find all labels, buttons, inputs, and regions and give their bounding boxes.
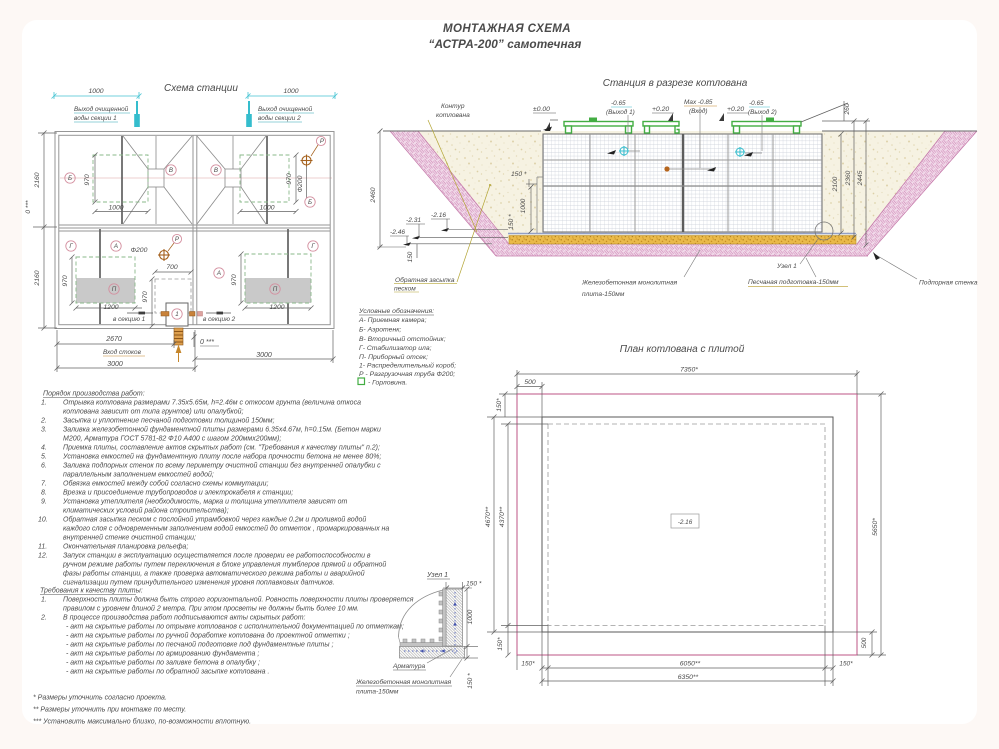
- svg-text:Железобетонная монолитная: Железобетонная монолитная: [355, 678, 452, 686]
- svg-text:в секцию 1: в секцию 1: [113, 316, 146, 323]
- svg-text:500: 500: [861, 637, 868, 648]
- svg-text:2.: 2.: [40, 418, 47, 425]
- svg-text:2460: 2460: [370, 187, 377, 203]
- svg-text:700: 700: [166, 264, 178, 271]
- svg-text:970: 970: [84, 174, 91, 186]
- svg-text:Железобетонная монолитная: Железобетонная монолитная: [581, 279, 678, 287]
- svg-text:плита-150мм: плита-150мм: [356, 689, 399, 696]
- svg-text:970: 970: [62, 275, 69, 287]
- svg-text:Ф200: Ф200: [297, 175, 304, 192]
- svg-text:10.: 10.: [38, 517, 48, 524]
- svg-text:1000: 1000: [467, 609, 474, 624]
- svg-text:- акт на скрытые работы по руч: - акт на скрытые работы по ручной дорабо…: [66, 632, 350, 640]
- svg-text:260: 260: [844, 103, 851, 115]
- svg-text:-2.16: -2.16: [678, 519, 693, 526]
- svg-text:Установка емкостей на фундамен: Установка емкостей на фундаментную плиту…: [62, 453, 381, 461]
- svg-text:5.: 5.: [41, 454, 47, 461]
- svg-text:В процессе производства работ: В процессе производства работ подписываю…: [63, 614, 306, 622]
- svg-text:Вход стоков: Вход стоков: [103, 348, 142, 356]
- svg-text:7350*: 7350*: [680, 367, 698, 374]
- svg-text:А: А: [216, 270, 221, 277]
- svg-text:2160: 2160: [34, 172, 41, 188]
- svg-text:Узел 1: Узел 1: [426, 572, 448, 579]
- svg-text:1000: 1000: [88, 88, 103, 95]
- svg-text:Окончательная планировка релье: Окончательная планировка рельефа;: [63, 544, 188, 551]
- svg-text:150*: 150*: [497, 637, 504, 651]
- svg-text:- акт на скрытые работы по отр: - акт на скрытые работы по отрывке котло…: [66, 623, 404, 631]
- svg-text:-0.65: -0.65: [749, 100, 764, 107]
- svg-text:150 *: 150 *: [511, 171, 527, 178]
- svg-text:+0.20: +0.20: [727, 106, 744, 113]
- svg-text:воды секции 1: воды секции 1: [74, 114, 117, 122]
- svg-text:правилом с уровнем длиной 2 ме: правилом с уровнем длиной 2 метра. При э…: [63, 605, 359, 613]
- svg-text:А- Приемная камера;: А- Приемная камера;: [358, 317, 427, 324]
- svg-text:Заливка подпорных стенок по вс: Заливка подпорных стенок по всему периме…: [63, 462, 381, 470]
- svg-text:2445: 2445: [857, 170, 864, 186]
- svg-text:Б: Б: [308, 199, 312, 206]
- svg-text:- Горловина.: - Горловина.: [368, 380, 407, 387]
- svg-text:1000: 1000: [520, 198, 527, 213]
- svg-text:- акт на скрытые работы по зал: - акт на скрытые работы по заливке бетон…: [66, 659, 260, 667]
- svg-text:П- Приборный отсек;: П- Приборный отсек;: [359, 353, 428, 361]
- svg-text:1.: 1.: [41, 597, 47, 604]
- svg-text:песком: песком: [394, 286, 416, 293]
- svg-text:внутренней стенке очистной ста: внутренней стенке очистной станции;: [63, 534, 196, 542]
- svg-text:Узел 1: Узел 1: [776, 263, 797, 270]
- svg-text:Отрывка котлована размерами 7.: Отрывка котлована размерами 7.35х5.65м, …: [63, 400, 361, 407]
- svg-text:6350**: 6350**: [678, 674, 699, 681]
- svg-text:параллельным заполнением емкос: параллельным заполнением емкостей водой;: [63, 471, 214, 479]
- svg-text:-2.31: -2.31: [406, 217, 421, 224]
- svg-text:5650*: 5650*: [872, 518, 879, 536]
- svg-text:Требования к качеству плиты:: Требования к качеству плиты:: [40, 587, 143, 595]
- svg-text:Мах -0.85: Мах -0.85: [684, 99, 713, 106]
- svg-text:- акт на скрытые работы по арм: - акт на скрытые работы по армированию ф…: [66, 650, 259, 658]
- svg-text:1000: 1000: [108, 205, 123, 212]
- svg-text:0 ***: 0 ***: [200, 339, 214, 346]
- svg-text:970: 970: [231, 274, 238, 286]
- svg-text:6050**: 6050**: [680, 661, 701, 668]
- svg-text:9.: 9.: [41, 499, 47, 506]
- svg-text:150*: 150*: [496, 398, 503, 412]
- svg-text:±0.00: ±0.00: [533, 106, 550, 113]
- svg-text:Б: Б: [68, 175, 72, 182]
- svg-text:(Выход 1): (Выход 1): [606, 108, 635, 116]
- svg-text:Станция в разрезе котлована: Станция в разрезе котлована: [603, 78, 748, 89]
- svg-text:-2.16: -2.16: [431, 212, 446, 219]
- svg-text:150 *: 150 *: [466, 581, 482, 588]
- svg-text:- акт на скрытые работы по обр: - акт на скрытые работы по обратной засы…: [66, 668, 269, 676]
- svg-text:Врезка и присоединение трубопр: Врезка и присоединение трубопроводов и э…: [63, 489, 293, 497]
- svg-text:каждого слоя с одновременным з: каждого слоя с одновременным заполнением…: [63, 525, 389, 533]
- svg-text:1200: 1200: [269, 304, 284, 311]
- svg-text:1.: 1.: [41, 400, 47, 407]
- svg-text:1000: 1000: [259, 205, 274, 212]
- svg-text:3000: 3000: [256, 352, 272, 359]
- svg-text:П: П: [273, 286, 278, 293]
- svg-text:Порядок производства работ:: Порядок производства работ:: [43, 390, 145, 398]
- svg-text:150: 150: [407, 251, 414, 262]
- svg-text:500: 500: [524, 379, 536, 386]
- svg-text:Поверхность плиты должна быть: Поверхность плиты должна быть строго гор…: [63, 596, 414, 604]
- svg-text:6.: 6.: [41, 463, 47, 470]
- svg-text:4370**: 4370**: [499, 506, 506, 527]
- svg-text:970: 970: [286, 173, 293, 185]
- svg-text:Г- Стабилизатор ила;: Г- Стабилизатор ила;: [359, 344, 432, 352]
- svg-text:котлована зависит от типа грун: котлована зависит от типа грунтов) или о…: [63, 408, 243, 416]
- svg-text:-2.46: -2.46: [390, 229, 405, 236]
- svg-text:План котлована с плитой: План котлована с плитой: [620, 344, 745, 355]
- svg-text:Условные обозначения:: Условные обозначения:: [358, 307, 434, 315]
- svg-text:150 *: 150 *: [508, 214, 515, 230]
- svg-text:8.: 8.: [41, 490, 47, 497]
- svg-text:Выход очищенной: Выход очищенной: [258, 105, 313, 113]
- svg-text:в секцию 2: в секцию 2: [203, 316, 236, 323]
- svg-text:11.: 11.: [38, 544, 47, 551]
- svg-text:Подпорная стенка: Подпорная стенка: [919, 279, 978, 287]
- svg-text:воды секции 2: воды секции 2: [258, 114, 301, 122]
- svg-text:МОНТАЖНАЯ СХЕМА: МОНТАЖНАЯ СХЕМА: [443, 23, 571, 35]
- svg-text:970: 970: [142, 291, 149, 303]
- svg-text:7.: 7.: [41, 481, 47, 488]
- svg-text:4.: 4.: [41, 445, 47, 452]
- svg-text:0 ***: 0 ***: [25, 200, 32, 214]
- svg-text:климатических условий района с: климатических условий района строительст…: [63, 507, 229, 515]
- svg-text:* Размеры уточнить согласно пр: * Размеры уточнить согласно проекта.: [33, 695, 167, 702]
- svg-text:** Размеры уточнить при монтаж: ** Размеры уточнить при монтаже по месту…: [33, 707, 186, 714]
- svg-text:2670: 2670: [105, 336, 122, 343]
- svg-text:Приемка плиты, составление акт: Приемка плиты, составление актов скрытых…: [63, 444, 380, 452]
- svg-text:В: В: [169, 167, 173, 174]
- svg-text:сигнализации путем принудитель: сигнализации путем принудительного измен…: [63, 579, 335, 587]
- svg-text:-0.65: -0.65: [611, 100, 626, 107]
- svg-text:2160: 2160: [34, 270, 41, 286]
- svg-text:4670**: 4670**: [485, 506, 492, 527]
- svg-text:1: 1: [175, 311, 178, 318]
- svg-text:+0.20: +0.20: [652, 106, 669, 113]
- svg-text:Запуск станции в эксплуатацию: Запуск станции в эксплуатацию осуществля…: [63, 552, 371, 560]
- svg-text:Обратная засыпка: Обратная засыпка: [395, 276, 455, 284]
- svg-text:Песчаная подготовка-150мм: Песчаная подготовка-150мм: [748, 278, 839, 286]
- svg-text:Выход очищенной: Выход очищенной: [74, 105, 129, 113]
- svg-text:Заливка железобетонной фундаме: Заливка железобетонной фундаментной плит…: [63, 426, 381, 434]
- svg-text:1000: 1000: [283, 88, 298, 95]
- svg-text:“АСТРА-200” самотечная: “АСТРА-200” самотечная: [429, 37, 582, 51]
- svg-text:1200: 1200: [103, 304, 118, 311]
- svg-text:3.: 3.: [41, 427, 47, 434]
- svg-text:котлована: котлована: [436, 112, 470, 119]
- svg-text:(Вход): (Вход): [689, 107, 708, 115]
- svg-text:П: П: [112, 286, 117, 293]
- svg-text:150*: 150*: [521, 661, 535, 668]
- svg-text:Обратная засыпка песком с посл: Обратная засыпка песком с послойной утра…: [63, 516, 366, 524]
- svg-text:фазы работы станции, а также п: фазы работы станции, а также проверка ав…: [63, 570, 365, 578]
- svg-text:Ф200: Ф200: [131, 247, 148, 254]
- svg-text:ручном режиме работы путем пер: ручном режиме работы путем переключения …: [62, 561, 386, 569]
- svg-text:2360: 2360: [845, 170, 852, 186]
- svg-text:В- Вторичный отстойник;: В- Вторичный отстойник;: [359, 335, 446, 343]
- svg-text:150 *: 150 *: [467, 673, 474, 689]
- svg-text:*** Установить максимально бли: *** Установить максимально близко, по-во…: [33, 718, 251, 726]
- svg-text:В: В: [214, 167, 218, 174]
- svg-text:плита-150мм: плита-150мм: [582, 291, 625, 298]
- svg-text:Обвязка емкостей между собой с: Обвязка емкостей между собой согласно сх…: [63, 480, 269, 488]
- svg-text:2100: 2100: [832, 176, 839, 192]
- svg-text:3000: 3000: [107, 361, 123, 368]
- svg-text:Арматура: Арматура: [392, 663, 425, 670]
- svg-text:150*: 150*: [839, 661, 853, 668]
- svg-text:А: А: [113, 243, 118, 250]
- svg-text:(Выход 2): (Выход 2): [748, 108, 777, 116]
- svg-text:Установка утеплителя (необходи: Установка утеплителя (необходимость, мар…: [62, 498, 348, 506]
- svg-text:Р - Разгрузочная труба Ф200;: Р - Разгрузочная труба Ф200;: [359, 370, 455, 378]
- svg-text:М200, Арматура ГОСТ 5781-82 Ф1: М200, Арматура ГОСТ 5781-82 Ф10 А400 с ш…: [63, 436, 281, 443]
- svg-text:2.: 2.: [40, 615, 47, 622]
- svg-text:Контур: Контур: [441, 103, 465, 110]
- svg-text:1- Распределительный короб;: 1- Распределительный короб;: [359, 362, 456, 370]
- svg-text:Б- Аэротенк;: Б- Аэротенк;: [359, 327, 401, 334]
- svg-text:12.: 12.: [38, 553, 48, 560]
- svg-text:Схема станции: Схема станции: [164, 83, 238, 94]
- svg-text:Засыпка и уплотнение песчаной: Засыпка и уплотнение песчаной подготовки…: [63, 417, 275, 425]
- svg-text:- акт на скрытые работы по пес: - акт на скрытые работы по песчаной подг…: [66, 641, 333, 649]
